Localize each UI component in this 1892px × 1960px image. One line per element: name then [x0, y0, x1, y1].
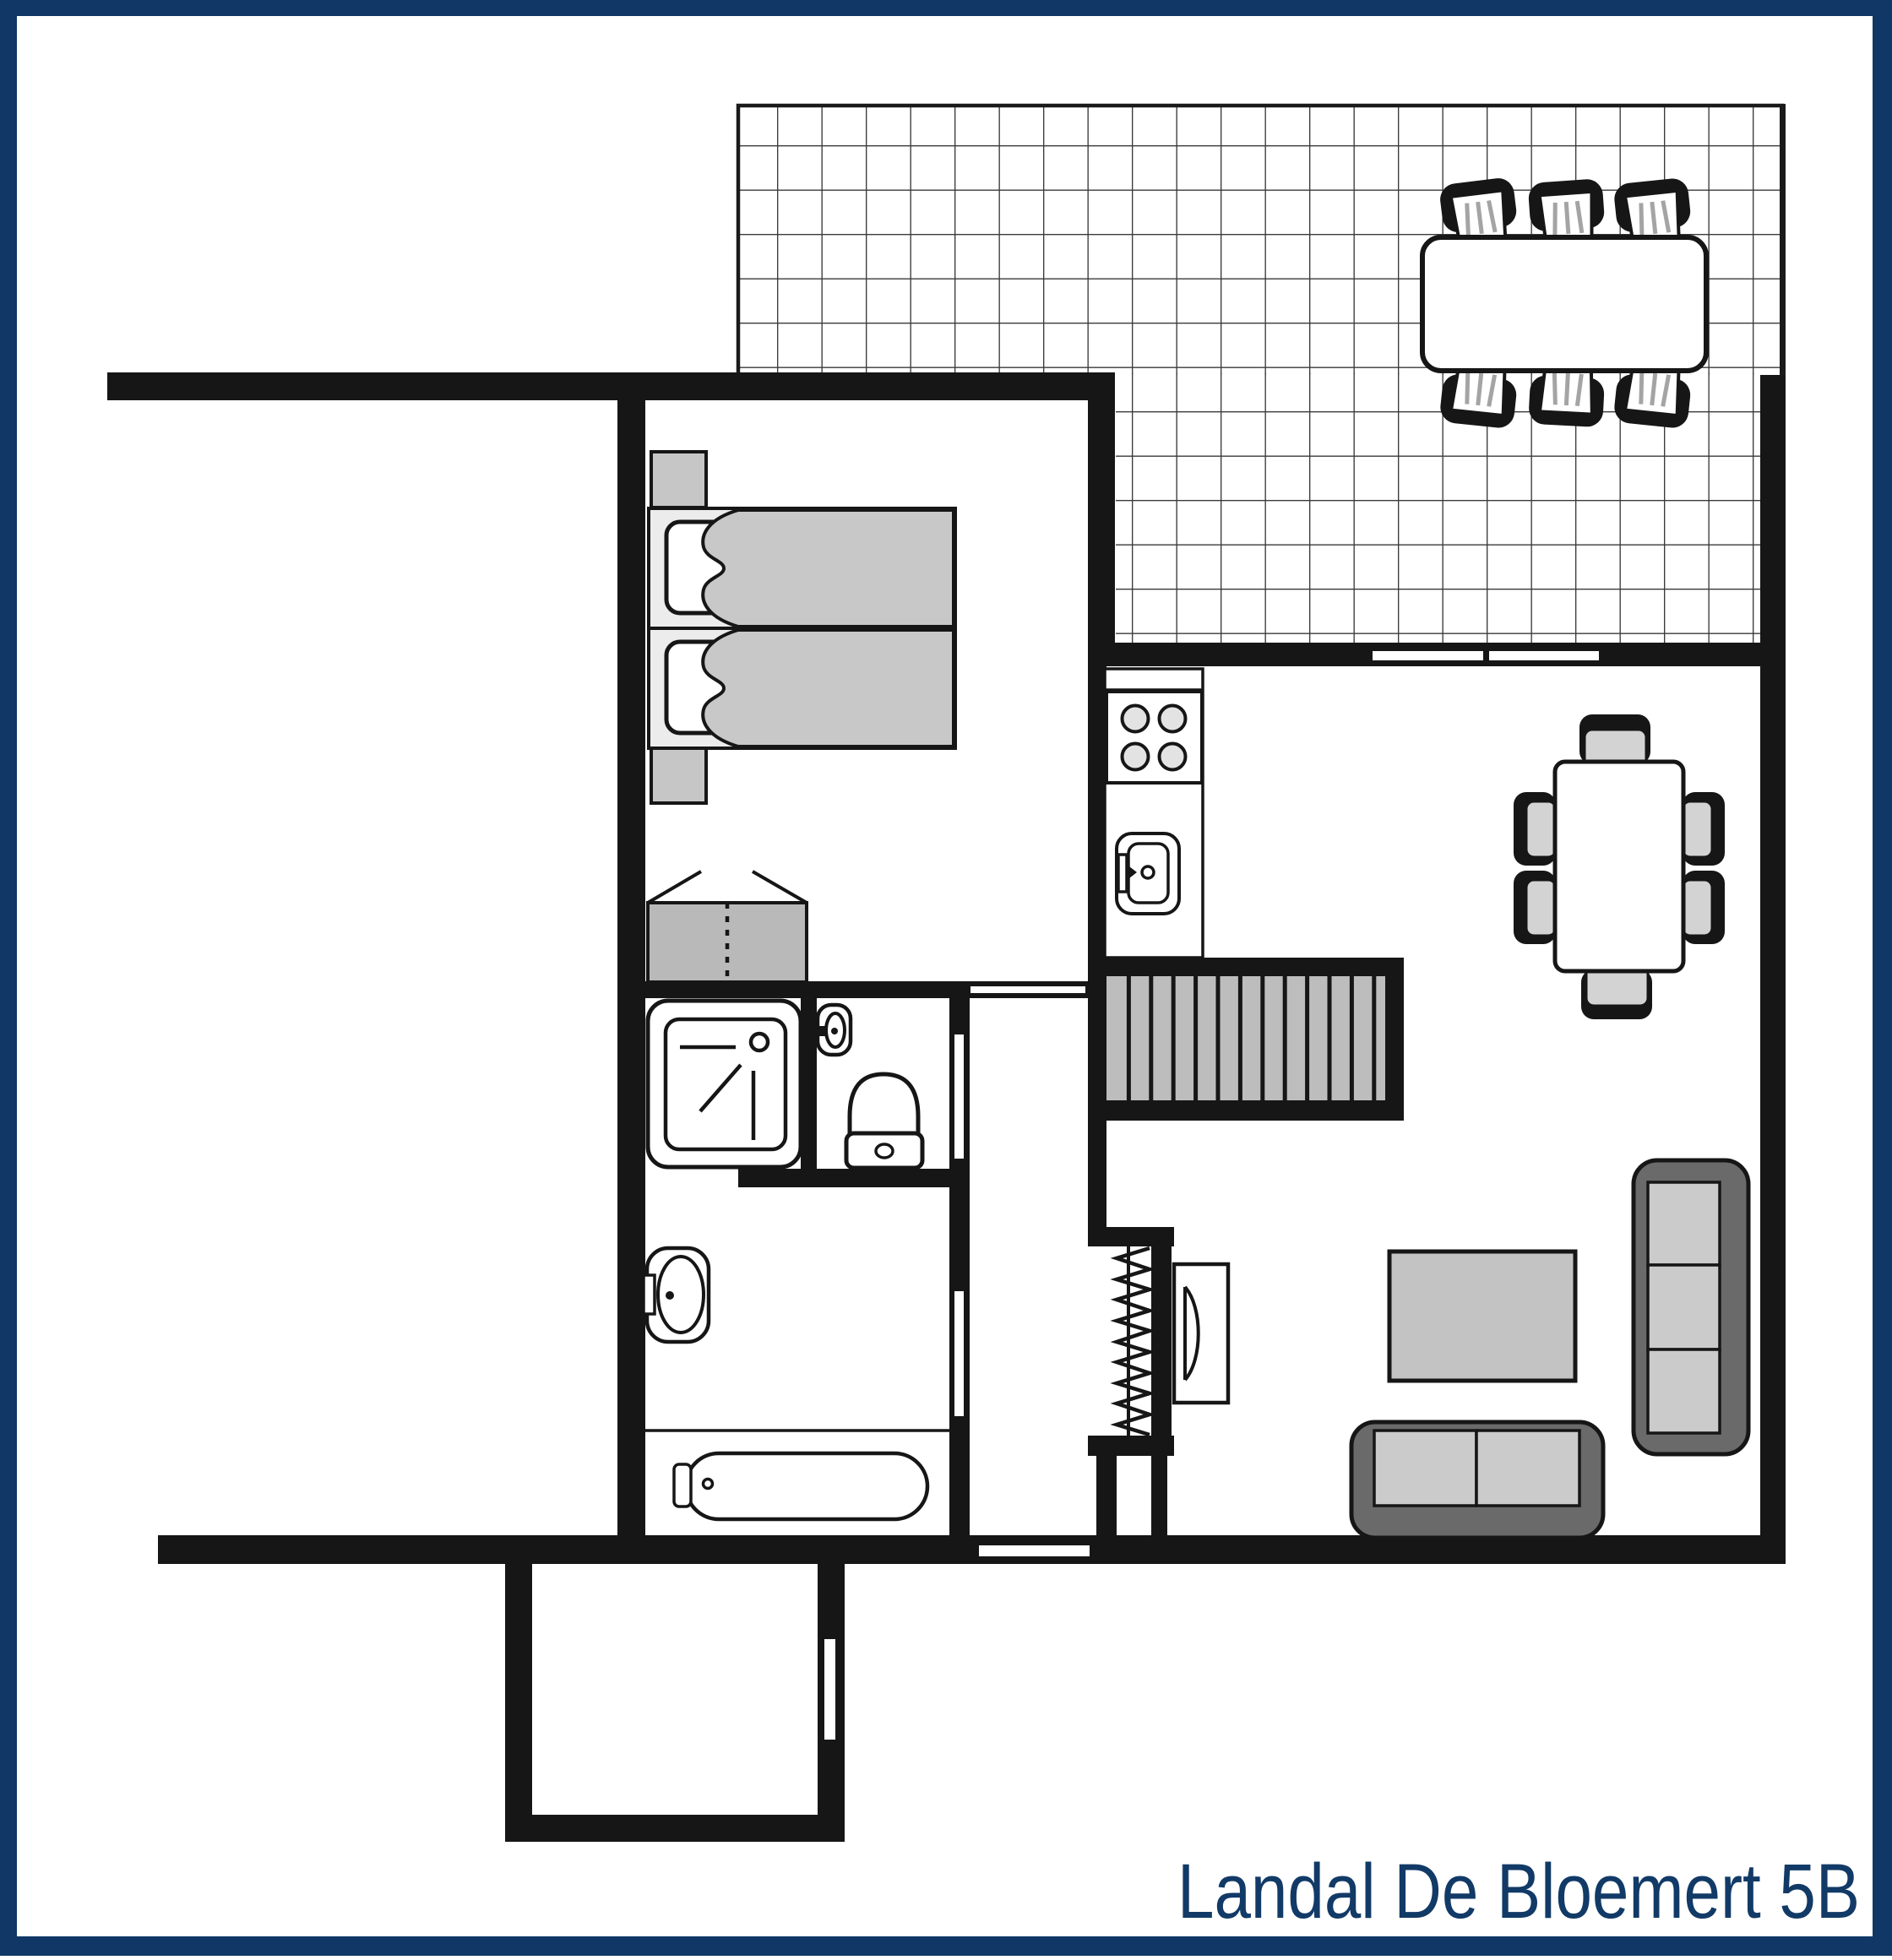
svg-text:Landal De Bloemert 5B: Landal De Bloemert 5B [1177, 1849, 1860, 1935]
